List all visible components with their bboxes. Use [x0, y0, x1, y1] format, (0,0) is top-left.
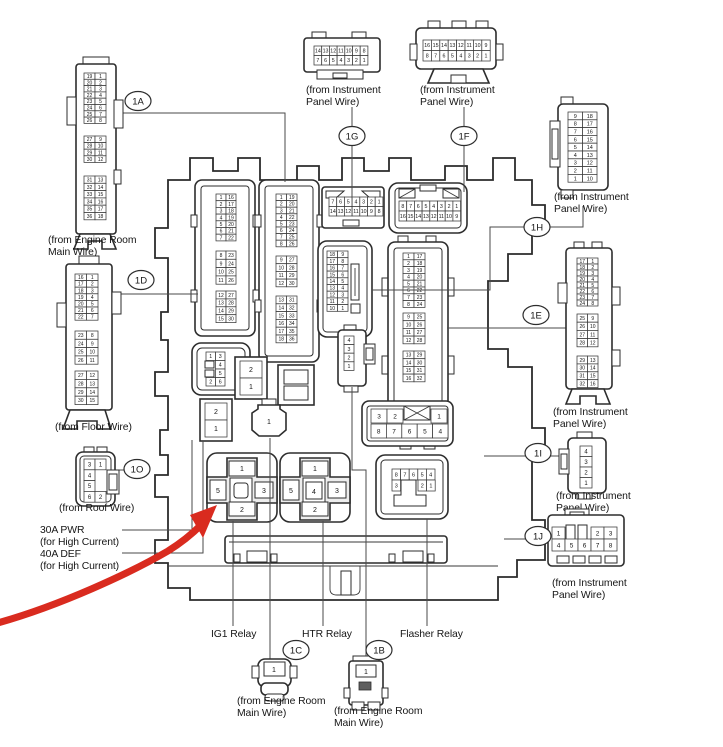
svg-text:4: 4 — [354, 200, 357, 206]
label-1g-line1: (from Instrument — [306, 85, 381, 96]
svg-text:5: 5 — [341, 279, 344, 285]
svg-text:4: 4 — [341, 286, 344, 292]
svg-text:13: 13 — [278, 298, 284, 304]
svg-text:3: 3 — [341, 292, 344, 298]
svg-text:30: 30 — [87, 157, 93, 163]
svg-text:27: 27 — [417, 330, 423, 336]
svg-text:4: 4 — [220, 215, 223, 221]
svg-text:22: 22 — [289, 215, 295, 221]
svg-text:12: 12 — [458, 43, 464, 49]
svg-text:7: 7 — [91, 315, 94, 321]
svg-text:26: 26 — [289, 241, 295, 247]
svg-text:12: 12 — [330, 49, 336, 55]
svg-text:4: 4 — [429, 472, 432, 478]
svg-text:3: 3 — [219, 354, 222, 360]
junction-box-wiring-diagram: 116217318419520621722 82392410251126 122… — [0, 0, 723, 747]
svg-text:1: 1 — [574, 176, 577, 182]
svg-text:7: 7 — [403, 472, 406, 478]
svg-text:13: 13 — [590, 358, 596, 364]
svg-text:29: 29 — [228, 309, 234, 315]
svg-text:31: 31 — [87, 177, 93, 183]
svg-text:16: 16 — [228, 195, 234, 201]
callout-1i: 1I — [525, 444, 551, 463]
svg-text:19: 19 — [289, 195, 295, 201]
svg-text:1G: 1G — [346, 132, 359, 143]
connector-1e: 171182193204215226237248 259261027112812… — [558, 242, 620, 404]
svg-text:12: 12 — [98, 157, 104, 163]
svg-text:36: 36 — [289, 337, 295, 343]
svg-text:11: 11 — [98, 150, 103, 156]
svg-text:3: 3 — [395, 483, 398, 489]
svg-text:2: 2 — [407, 261, 410, 267]
svg-text:1D: 1D — [135, 276, 147, 287]
svg-text:3: 3 — [440, 204, 443, 210]
svg-text:8: 8 — [91, 333, 94, 339]
label-1f-line1: (from Instrument — [420, 85, 495, 96]
svg-text:13: 13 — [423, 214, 429, 220]
ig1-pin-1: 1 — [240, 466, 244, 473]
svg-text:8: 8 — [341, 259, 344, 265]
svg-text:9: 9 — [355, 49, 358, 55]
label-1g-line2: Panel Wire) — [306, 97, 359, 108]
svg-text:18: 18 — [98, 214, 104, 220]
svg-text:12: 12 — [218, 293, 224, 299]
svg-text:3: 3 — [377, 413, 381, 420]
svg-text:15: 15 — [218, 316, 224, 322]
svg-text:2: 2 — [348, 355, 351, 361]
svg-text:5: 5 — [347, 200, 350, 206]
svg-text:2: 2 — [249, 367, 253, 374]
svg-text:1: 1 — [91, 275, 94, 281]
svg-text:13: 13 — [338, 209, 344, 215]
svg-text:2: 2 — [355, 58, 358, 64]
svg-text:9: 9 — [91, 341, 94, 347]
svg-text:8: 8 — [426, 54, 429, 60]
svg-text:1: 1 — [378, 200, 381, 206]
internal-connector-1g-mate: 7654321141312111098 — [322, 187, 384, 228]
svg-text:28: 28 — [228, 301, 234, 307]
svg-text:12: 12 — [345, 209, 351, 215]
svg-text:1: 1 — [429, 483, 432, 489]
svg-text:3: 3 — [280, 208, 283, 214]
svg-text:23: 23 — [417, 295, 423, 301]
label-1e-line2: Panel Wire) — [553, 419, 606, 430]
svg-text:5: 5 — [574, 145, 577, 151]
svg-text:34: 34 — [87, 199, 93, 205]
svg-text:2: 2 — [574, 168, 577, 174]
svg-text:8: 8 — [378, 209, 381, 215]
svg-text:11: 11 — [439, 214, 445, 220]
svg-text:2: 2 — [448, 204, 451, 210]
svg-text:13: 13 — [406, 353, 412, 359]
label-30a-pwr: 30A PWR — [40, 525, 85, 536]
svg-text:30: 30 — [579, 366, 585, 372]
svg-text:4: 4 — [459, 54, 462, 60]
svg-text:6: 6 — [341, 272, 344, 278]
svg-text:5: 5 — [219, 371, 222, 377]
svg-text:14: 14 — [98, 185, 104, 191]
svg-text:6: 6 — [339, 200, 342, 206]
svg-text:5: 5 — [451, 54, 454, 60]
svg-text:11: 11 — [587, 168, 593, 174]
svg-text:5: 5 — [421, 472, 424, 478]
svg-text:3: 3 — [348, 347, 351, 353]
connector-1c-pin: 1 — [272, 667, 276, 674]
callout-1b: 1B — [366, 641, 392, 660]
svg-text:9: 9 — [574, 114, 577, 120]
svg-text:25: 25 — [417, 315, 423, 321]
svg-text:24: 24 — [417, 302, 423, 308]
svg-text:6: 6 — [408, 428, 412, 435]
label-1j-line2: Panel Wire) — [552, 590, 605, 601]
svg-text:19: 19 — [78, 295, 84, 301]
internal-connector-1f-mate: 87654321161514131211109 — [389, 183, 467, 233]
svg-text:9: 9 — [591, 316, 594, 322]
svg-text:8: 8 — [363, 49, 366, 55]
svg-text:14: 14 — [330, 209, 336, 215]
svg-text:15: 15 — [408, 214, 414, 220]
svg-text:16: 16 — [424, 43, 430, 49]
svg-text:7: 7 — [331, 200, 334, 206]
svg-text:22: 22 — [78, 315, 84, 321]
svg-text:13: 13 — [98, 177, 104, 183]
svg-text:2: 2 — [220, 202, 223, 208]
svg-text:10: 10 — [361, 209, 367, 215]
svg-text:21: 21 — [228, 229, 234, 235]
svg-text:28: 28 — [87, 144, 93, 150]
svg-text:13: 13 — [587, 153, 593, 159]
svg-text:30: 30 — [289, 281, 295, 287]
svg-text:15: 15 — [590, 374, 596, 380]
svg-text:2: 2 — [91, 282, 94, 288]
svg-text:16: 16 — [98, 199, 104, 205]
svg-text:8: 8 — [395, 472, 398, 478]
svg-text:15: 15 — [433, 43, 439, 49]
svg-text:1: 1 — [280, 195, 283, 201]
svg-text:5: 5 — [332, 58, 335, 64]
callout-1d: 1D — [128, 271, 154, 290]
bowtie-key-icon — [404, 406, 430, 420]
label-1c-line2: Main Wire) — [237, 708, 286, 719]
svg-text:31: 31 — [417, 368, 423, 374]
svg-text:4: 4 — [219, 363, 222, 369]
svg-text:13: 13 — [449, 43, 455, 49]
svg-text:6: 6 — [443, 54, 446, 60]
svg-text:1J: 1J — [533, 532, 543, 543]
svg-text:4: 4 — [574, 153, 577, 159]
label-htr-relay: HTR Relay — [302, 629, 353, 640]
callout-1c: 1C — [283, 641, 309, 660]
callout-1g: 1G — [339, 127, 365, 146]
svg-text:4: 4 — [557, 542, 561, 549]
svg-text:14: 14 — [587, 145, 593, 151]
svg-text:5: 5 — [423, 428, 427, 435]
svg-text:35: 35 — [289, 329, 295, 335]
svg-text:31: 31 — [579, 374, 585, 380]
svg-text:3: 3 — [91, 288, 94, 294]
htr-pin-1: 1 — [313, 466, 317, 473]
label-30a-pwr-sub: (for High Current) — [40, 537, 119, 548]
svg-text:32: 32 — [417, 376, 423, 382]
svg-text:4: 4 — [280, 215, 283, 221]
svg-text:8: 8 — [99, 118, 102, 124]
svg-text:25: 25 — [78, 350, 84, 356]
svg-text:27: 27 — [87, 137, 93, 143]
svg-text:26: 26 — [228, 278, 234, 284]
svg-text:1: 1 — [220, 195, 223, 201]
svg-text:28: 28 — [78, 381, 84, 387]
svg-text:15: 15 — [329, 272, 335, 278]
svg-text:34: 34 — [289, 321, 295, 327]
blank-fuse-block — [278, 365, 314, 405]
htr-pin-4: 4 — [312, 489, 316, 496]
svg-text:1B: 1B — [373, 646, 385, 657]
svg-text:16: 16 — [278, 321, 284, 327]
svg-text:6: 6 — [574, 137, 577, 143]
label-1c-line1: (from Engine Room — [237, 696, 325, 707]
svg-text:29: 29 — [417, 353, 423, 359]
svg-text:33: 33 — [289, 313, 295, 319]
svg-text:7: 7 — [280, 235, 283, 241]
svg-text:5: 5 — [570, 542, 574, 549]
svg-text:11: 11 — [353, 209, 359, 215]
svg-text:17: 17 — [417, 254, 423, 260]
label-1f-line2: Panel Wire) — [420, 97, 473, 108]
svg-text:2: 2 — [341, 299, 344, 305]
connector-1d: 161172183194205216227 23824925102611 271… — [57, 256, 121, 429]
svg-text:1: 1 — [557, 530, 561, 537]
callout-1a: 1A — [125, 92, 151, 111]
svg-text:18: 18 — [587, 114, 593, 120]
svg-text:16: 16 — [329, 266, 335, 272]
svg-text:1E: 1E — [530, 311, 542, 322]
svg-text:1: 1 — [437, 413, 441, 420]
svg-text:28: 28 — [579, 341, 585, 347]
svg-text:25: 25 — [289, 235, 295, 241]
connector-1a: 191202213224235246257268 279281029113012… — [67, 57, 123, 249]
ig1-pin-3: 3 — [262, 488, 266, 495]
svg-text:10: 10 — [475, 43, 481, 49]
svg-text:1: 1 — [407, 254, 410, 260]
svg-text:24: 24 — [78, 341, 84, 347]
svg-text:9: 9 — [455, 214, 458, 220]
svg-text:23: 23 — [289, 222, 295, 228]
svg-text:1H: 1H — [531, 223, 543, 234]
svg-text:1: 1 — [341, 306, 344, 312]
svg-text:1A: 1A — [132, 97, 144, 108]
svg-text:29: 29 — [289, 273, 295, 279]
svg-text:26: 26 — [579, 324, 585, 330]
svg-text:1: 1 — [214, 426, 218, 433]
svg-text:11: 11 — [406, 330, 411, 336]
svg-text:8: 8 — [280, 241, 283, 247]
svg-text:26: 26 — [417, 322, 423, 328]
svg-text:12: 12 — [590, 341, 596, 347]
svg-text:27: 27 — [78, 373, 84, 379]
svg-text:2: 2 — [214, 409, 218, 416]
svg-text:14: 14 — [415, 214, 421, 220]
svg-text:13: 13 — [218, 301, 224, 307]
svg-text:12: 12 — [329, 292, 335, 298]
svg-text:31: 31 — [289, 298, 295, 304]
svg-text:11: 11 — [90, 358, 95, 364]
fuse-block-a: 21 — [235, 357, 267, 399]
svg-text:1: 1 — [249, 384, 253, 391]
svg-text:4: 4 — [91, 295, 94, 301]
svg-text:8: 8 — [591, 301, 594, 307]
svg-text:14: 14 — [218, 309, 224, 315]
svg-text:16: 16 — [590, 381, 596, 387]
svg-text:16: 16 — [406, 376, 412, 382]
svg-text:8: 8 — [609, 542, 613, 549]
svg-text:12: 12 — [89, 373, 95, 379]
svg-text:18: 18 — [278, 337, 284, 343]
svg-text:11: 11 — [218, 278, 223, 284]
svg-text:12: 12 — [406, 338, 412, 344]
svg-text:1: 1 — [485, 54, 488, 60]
svg-text:36: 36 — [87, 214, 93, 220]
svg-text:2: 2 — [280, 202, 283, 208]
svg-text:14: 14 — [406, 360, 412, 366]
svg-text:30: 30 — [228, 316, 234, 322]
svg-text:28: 28 — [289, 265, 295, 271]
htr-pin-2: 2 — [313, 507, 317, 514]
label-1d: (from Floor Wire) — [55, 422, 132, 433]
svg-text:18: 18 — [78, 288, 84, 294]
svg-text:25: 25 — [579, 316, 585, 322]
svg-text:14: 14 — [315, 49, 321, 55]
internal-connector-1a-mate: 119220321422523624725826 927102811291230… — [255, 180, 323, 362]
svg-text:11: 11 — [330, 299, 335, 305]
svg-text:9: 9 — [280, 258, 283, 264]
ig1-pin-5: 5 — [216, 488, 220, 495]
internal-connector-1h-mate: 189178167156145134123112101 — [318, 241, 372, 337]
svg-text:27: 27 — [579, 332, 585, 338]
svg-text:15: 15 — [278, 313, 284, 319]
svg-text:4: 4 — [432, 204, 435, 210]
svg-text:20: 20 — [417, 275, 423, 281]
svg-text:24: 24 — [289, 228, 295, 234]
label-40a-def: 40A DEF — [40, 549, 81, 560]
svg-text:9: 9 — [99, 137, 102, 143]
svg-text:5: 5 — [424, 204, 427, 210]
svg-text:26: 26 — [87, 118, 93, 124]
svg-text:17: 17 — [78, 282, 84, 288]
svg-text:22: 22 — [228, 235, 234, 241]
ig1-relay-socket: 1 5 3 2 — [207, 453, 277, 522]
connector-1b: 1 — [344, 656, 388, 710]
svg-text:21: 21 — [78, 308, 84, 314]
svg-text:35: 35 — [87, 207, 93, 213]
svg-text:26: 26 — [78, 358, 84, 364]
svg-text:2: 2 — [596, 530, 600, 537]
svg-text:10: 10 — [590, 324, 596, 330]
svg-text:32: 32 — [289, 306, 295, 312]
svg-text:1I: 1I — [534, 449, 542, 460]
connector-1o: 314562 — [76, 447, 119, 506]
svg-text:15: 15 — [587, 137, 593, 143]
svg-text:17: 17 — [228, 202, 234, 208]
callout-1e: 1E — [523, 306, 549, 325]
svg-text:13: 13 — [323, 49, 329, 55]
svg-text:6: 6 — [412, 472, 415, 478]
svg-text:17: 17 — [587, 122, 593, 128]
svg-text:17: 17 — [278, 329, 284, 335]
svg-text:9: 9 — [370, 209, 373, 215]
svg-text:10: 10 — [346, 49, 352, 55]
svg-text:2: 2 — [476, 54, 479, 60]
svg-text:27: 27 — [289, 258, 295, 264]
svg-text:7: 7 — [596, 542, 600, 549]
svg-text:1: 1 — [363, 58, 366, 64]
svg-text:16: 16 — [587, 129, 593, 135]
label-flasher-relay: Flasher Relay — [400, 629, 464, 640]
svg-text:20: 20 — [289, 202, 295, 208]
svg-text:24: 24 — [579, 301, 585, 307]
svg-text:11: 11 — [590, 332, 595, 338]
svg-text:32: 32 — [87, 185, 93, 191]
svg-text:8: 8 — [407, 302, 410, 308]
svg-text:4: 4 — [407, 275, 410, 281]
svg-text:4: 4 — [339, 58, 342, 64]
svg-text:10: 10 — [446, 214, 452, 220]
svg-text:9: 9 — [485, 43, 488, 49]
svg-text:12: 12 — [431, 214, 437, 220]
label-1a-line1: (from Engine Room — [48, 235, 136, 246]
label-1o: (from Roof Wire) — [59, 503, 134, 514]
htr-pin-3: 3 — [335, 488, 339, 495]
svg-text:5: 5 — [91, 302, 94, 308]
svg-text:20: 20 — [228, 222, 234, 228]
connector-1j: 1 23 45678 — [548, 509, 624, 566]
svg-text:3: 3 — [347, 58, 350, 64]
svg-text:23: 23 — [228, 253, 234, 259]
svg-text:7: 7 — [220, 235, 223, 241]
label-1j-line1: (from Instrument — [552, 578, 627, 589]
svg-text:3: 3 — [220, 209, 223, 215]
svg-text:5: 5 — [280, 222, 283, 228]
svg-text:10: 10 — [406, 322, 412, 328]
svg-text:6: 6 — [583, 542, 587, 549]
fuse-1c-pin: 1 — [267, 419, 271, 426]
svg-text:10: 10 — [329, 306, 335, 312]
label-40a-def-sub: (for High Current) — [40, 561, 119, 572]
svg-text:14: 14 — [329, 279, 335, 285]
label-1e-line1: (from Instrument — [553, 407, 628, 418]
ig1-pin-2: 2 — [240, 507, 244, 514]
svg-text:12: 12 — [587, 161, 593, 167]
svg-text:4: 4 — [438, 428, 442, 435]
svg-text:25: 25 — [228, 270, 234, 276]
svg-text:6: 6 — [324, 58, 327, 64]
svg-text:5: 5 — [220, 222, 223, 228]
svg-text:15: 15 — [89, 398, 95, 404]
svg-text:18: 18 — [329, 252, 335, 258]
callout-1h: 1H — [524, 218, 550, 237]
svg-text:29: 29 — [579, 358, 585, 364]
htr-relay-socket: 1 5 4 3 2 — [280, 453, 350, 522]
svg-text:3: 3 — [407, 268, 410, 274]
svg-text:14: 14 — [441, 43, 447, 49]
svg-text:2: 2 — [209, 380, 212, 386]
label-1b-line1: (from Engine Room — [334, 706, 422, 717]
socket-8pin-relay: 32 1 87654 — [362, 401, 453, 446]
svg-text:6: 6 — [91, 308, 94, 314]
svg-text:1: 1 — [348, 364, 351, 370]
connector-1g: 1413121110987654321 — [304, 32, 380, 79]
internal-connector-1d-mate: 116217318419520621722 82392410251126 122… — [191, 180, 259, 336]
callout-1o: 1O — [124, 460, 150, 479]
